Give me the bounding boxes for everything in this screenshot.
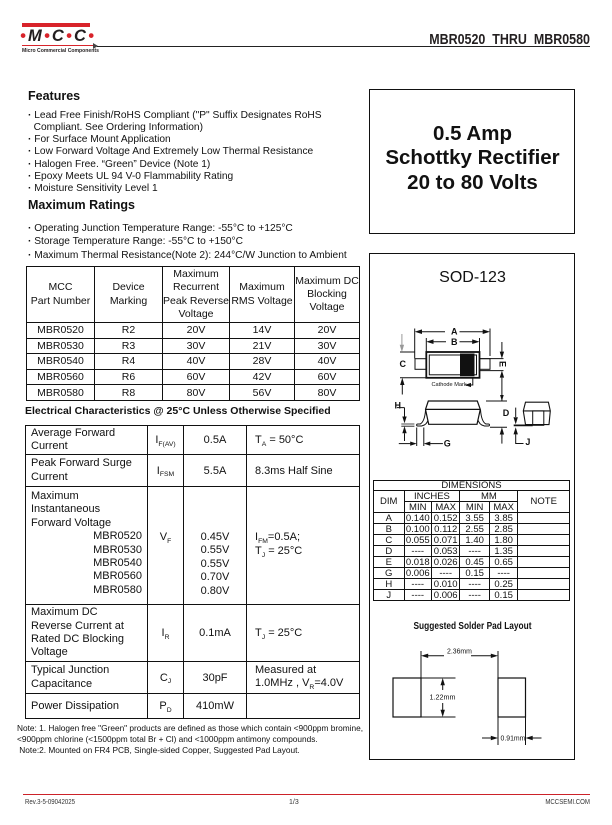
- svg-text:G: G: [444, 438, 451, 448]
- svg-text:C: C: [400, 359, 407, 369]
- svg-text:Cathode Mark: Cathode Mark: [432, 382, 467, 388]
- svg-text:E: E: [498, 361, 508, 367]
- svg-text:0.91mm: 0.91mm: [501, 736, 526, 743]
- svg-text:A: A: [451, 327, 458, 337]
- svg-text:H: H: [395, 401, 402, 411]
- svg-text:J: J: [525, 437, 530, 447]
- svg-text:D: D: [503, 408, 510, 418]
- svg-text:2.36mm: 2.36mm: [447, 649, 472, 656]
- svg-text:1.22mm: 1.22mm: [430, 693, 456, 702]
- svg-text:B: B: [451, 337, 458, 347]
